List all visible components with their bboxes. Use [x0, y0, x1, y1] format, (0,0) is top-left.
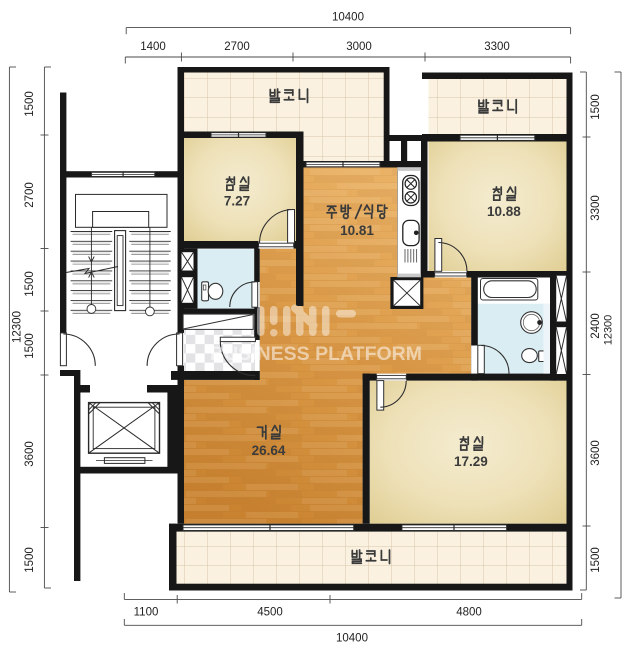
svg-text:1400: 1400 [140, 41, 166, 53]
svg-text:26.64: 26.64 [252, 443, 286, 458]
svg-text:12300: 12300 [603, 315, 615, 346]
svg-text:1100: 1100 [134, 607, 159, 619]
svg-text:7.27: 7.27 [224, 193, 250, 208]
svg-text:3300: 3300 [590, 195, 602, 221]
svg-text:BUSINESS PLATFORM: BUSINESS PLATFORM [210, 343, 422, 365]
svg-text:10.81: 10.81 [340, 223, 374, 238]
svg-text:1500: 1500 [24, 271, 36, 297]
svg-text:3600: 3600 [24, 441, 36, 467]
svg-text:3000: 3000 [346, 41, 372, 53]
svg-text:1500: 1500 [24, 333, 36, 359]
svg-text:10400: 10400 [332, 12, 364, 24]
svg-text:4500: 4500 [257, 607, 283, 619]
svg-text:10.88: 10.88 [487, 204, 521, 219]
svg-text:3300: 3300 [484, 41, 510, 53]
svg-text:1500: 1500 [590, 94, 602, 120]
svg-text:1500: 1500 [24, 91, 36, 117]
svg-text:3600: 3600 [590, 440, 602, 466]
svg-text:2700: 2700 [24, 182, 36, 208]
svg-text:1500: 1500 [24, 547, 36, 573]
svg-text:10400: 10400 [336, 633, 368, 645]
svg-text:1500: 1500 [590, 547, 602, 573]
svg-text:17.29: 17.29 [454, 454, 488, 469]
svg-text:12300: 12300 [12, 311, 24, 343]
svg-text:2700: 2700 [224, 41, 250, 53]
svg-text:2400: 2400 [590, 313, 602, 339]
svg-text:4800: 4800 [456, 607, 482, 619]
